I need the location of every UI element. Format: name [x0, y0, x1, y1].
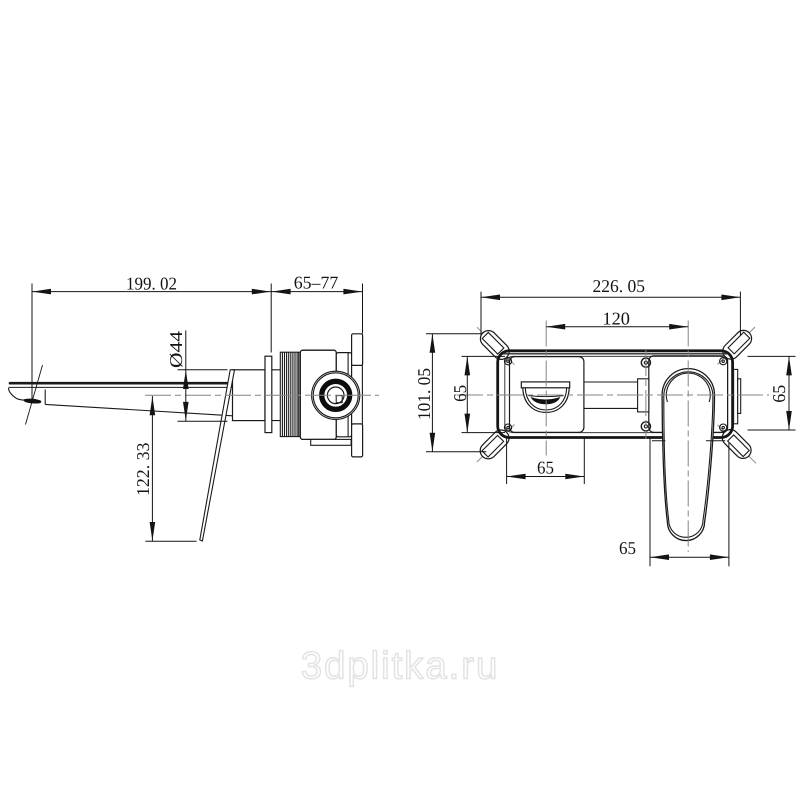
svg-text:199. 02: 199. 02 [126, 274, 177, 294]
svg-text:65: 65 [537, 458, 554, 478]
svg-text:65: 65 [619, 538, 636, 558]
svg-text:65: 65 [450, 385, 470, 402]
svg-text:122. 33: 122. 33 [133, 443, 153, 497]
svg-text:101. 05: 101. 05 [414, 368, 434, 420]
svg-text:120: 120 [602, 309, 630, 329]
svg-text:3dplitka.ru: 3dplitka.ru [301, 645, 500, 688]
svg-text:65–77: 65–77 [294, 273, 339, 293]
svg-text:Ø44: Ø44 [166, 331, 186, 368]
svg-text:65: 65 [769, 385, 789, 403]
svg-text:226. 05: 226. 05 [592, 276, 645, 296]
